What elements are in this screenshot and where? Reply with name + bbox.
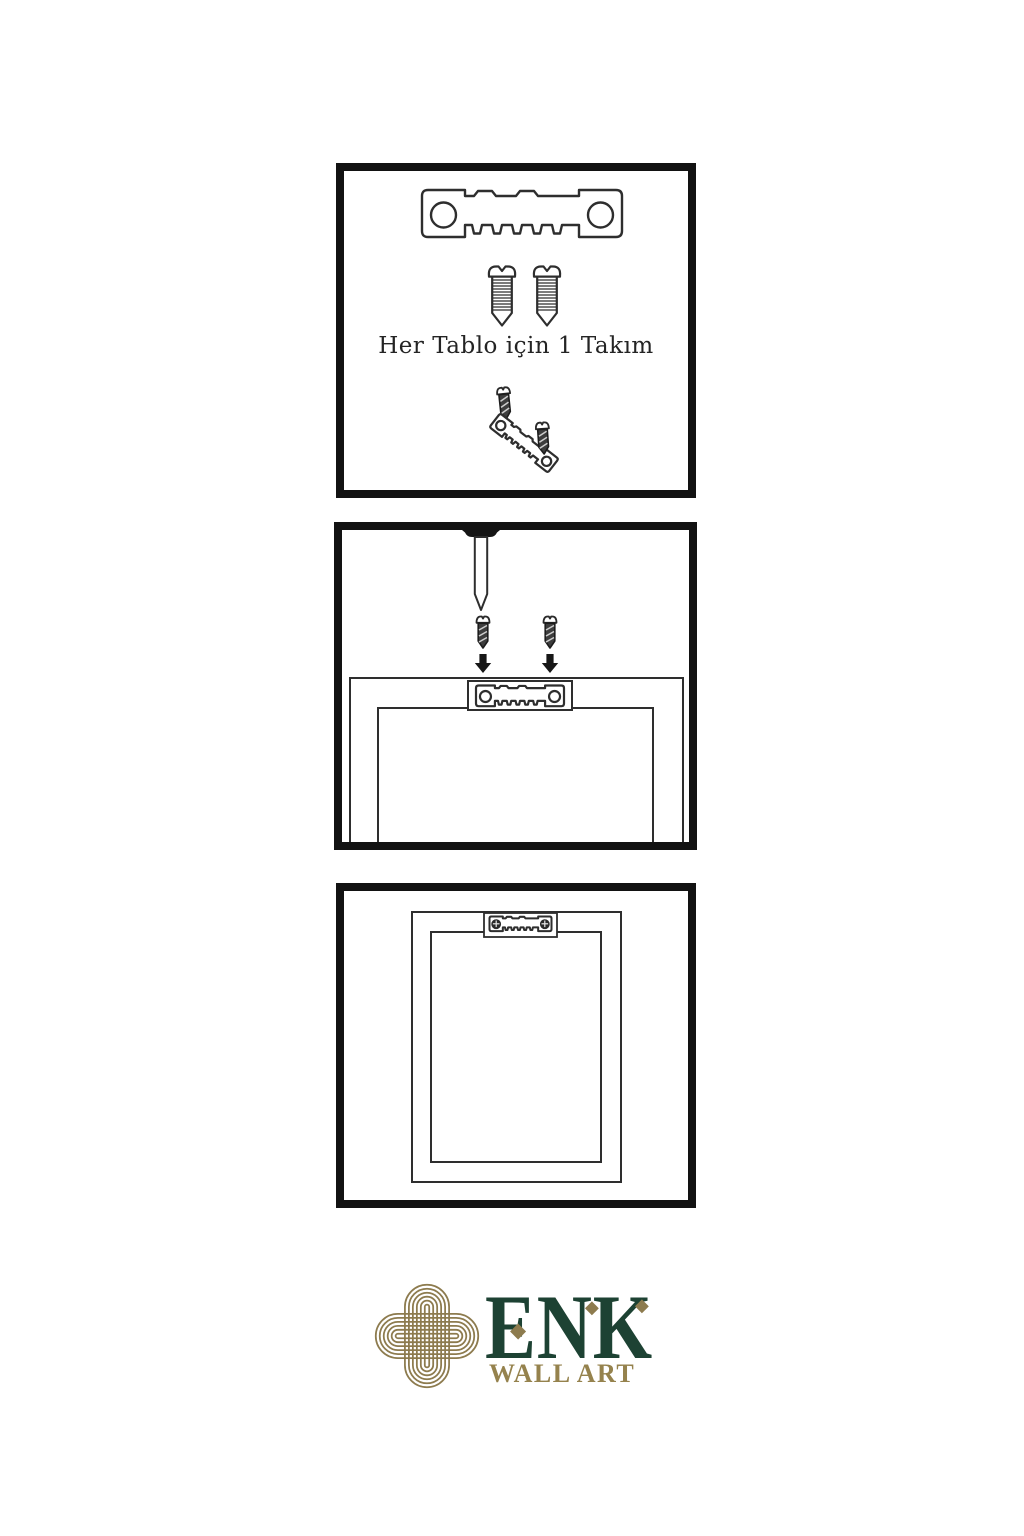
installed-hanger-icon <box>484 913 557 937</box>
step-3-panel <box>336 883 696 1208</box>
down-arrow-icon <box>475 654 491 673</box>
kit-caption: Her Tablo için 1 Takım <box>344 333 688 359</box>
screw-icon <box>477 617 490 649</box>
knot-logo-icon <box>374 1280 480 1392</box>
down-arrow-icon <box>542 654 558 673</box>
step-2-illustration <box>342 530 689 842</box>
screwdriver-icon <box>462 530 500 610</box>
brand-subtitle: WALL ART <box>489 1361 635 1387</box>
instruction-sheet: Her Tablo için 1 Takım <box>0 0 1024 1536</box>
frame-back <box>412 912 621 1182</box>
diamond-accent-icon: ◆ <box>635 1297 649 1315</box>
screw-icon <box>534 267 560 326</box>
diamond-accent-icon: ◆ <box>585 1299 599 1317</box>
screw-head-icon <box>540 919 549 928</box>
sawtooth-hanger-icon <box>422 190 622 237</box>
screw-icon <box>544 617 557 649</box>
step-3-illustration <box>344 891 688 1200</box>
screw-icon <box>489 267 515 326</box>
hanger-assembly-icon <box>489 387 558 473</box>
brand-name: ENK <box>485 1281 653 1373</box>
screw-head-icon <box>492 919 501 928</box>
step-1-illustration <box>344 171 688 490</box>
diamond-accent-icon: ◆ <box>510 1320 526 1341</box>
mounted-hanger-icon <box>468 681 572 710</box>
step-1-panel: Her Tablo için 1 Takım <box>336 163 696 498</box>
step-2-panel <box>334 522 697 850</box>
